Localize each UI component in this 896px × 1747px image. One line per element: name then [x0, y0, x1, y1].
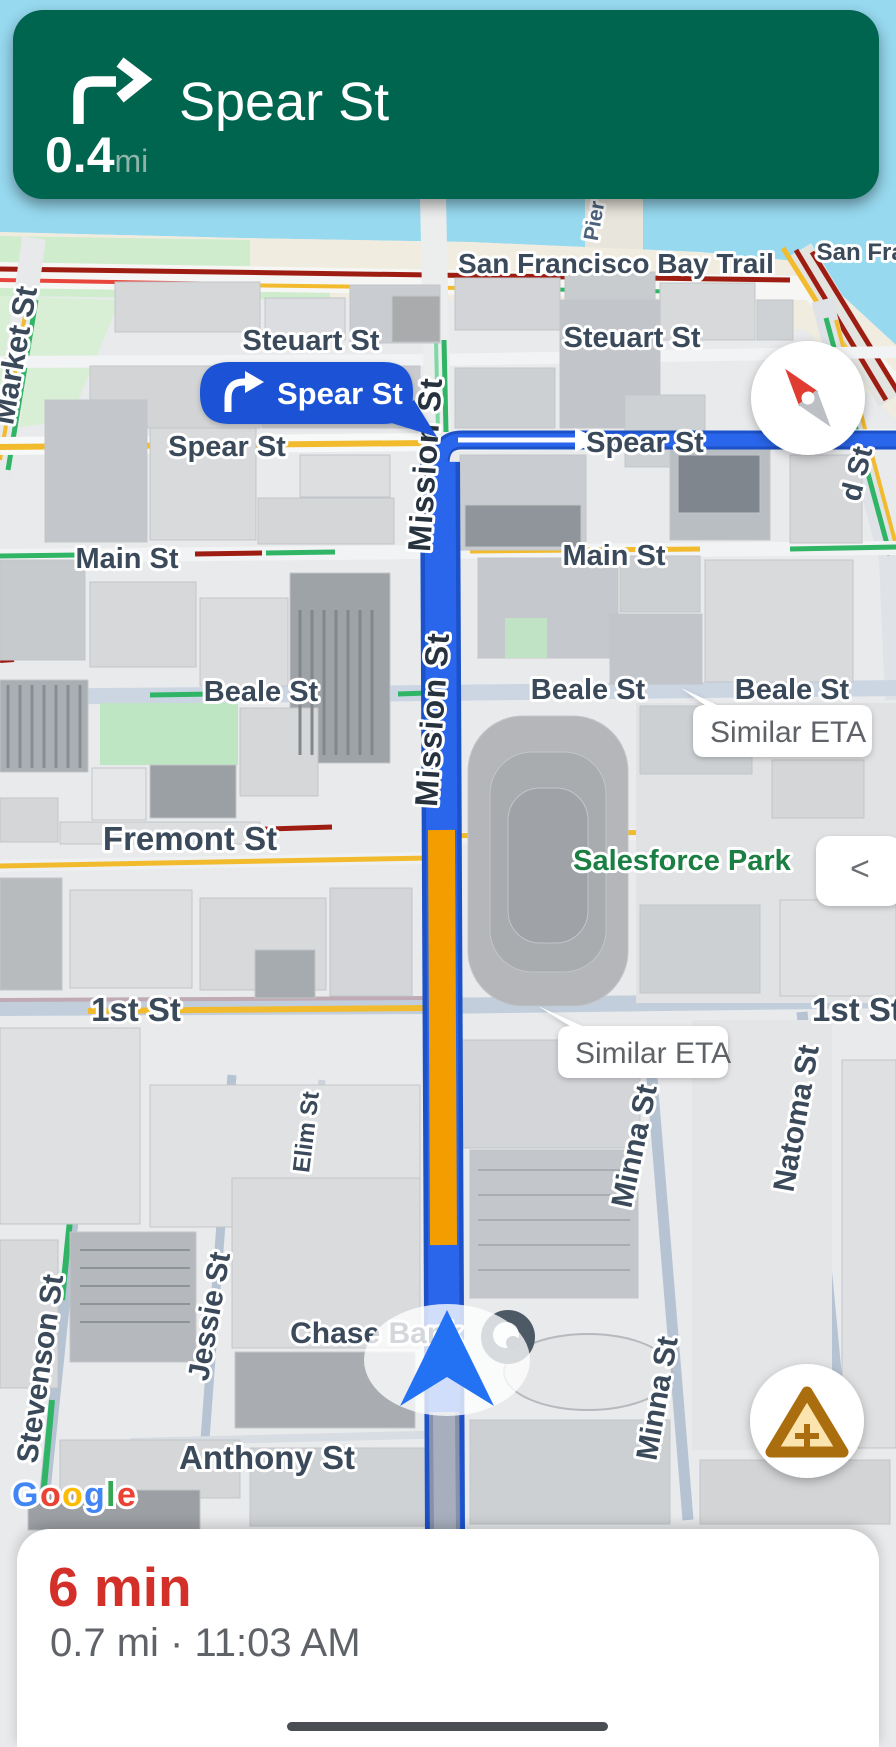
svg-text:Similar ETA: Similar ETA — [710, 716, 866, 749]
svg-text:l: l — [106, 1476, 115, 1514]
svg-text:o: o — [40, 1476, 61, 1514]
svg-text:e: e — [117, 1476, 136, 1514]
svg-text:Similar ETA: Similar ETA — [575, 1037, 731, 1070]
svg-text:g: g — [84, 1476, 105, 1514]
svg-text:<: < — [850, 850, 870, 888]
svg-text:Spear St: Spear St — [277, 376, 403, 411]
svg-text:o: o — [62, 1476, 83, 1514]
svg-text:G: G — [12, 1476, 38, 1514]
